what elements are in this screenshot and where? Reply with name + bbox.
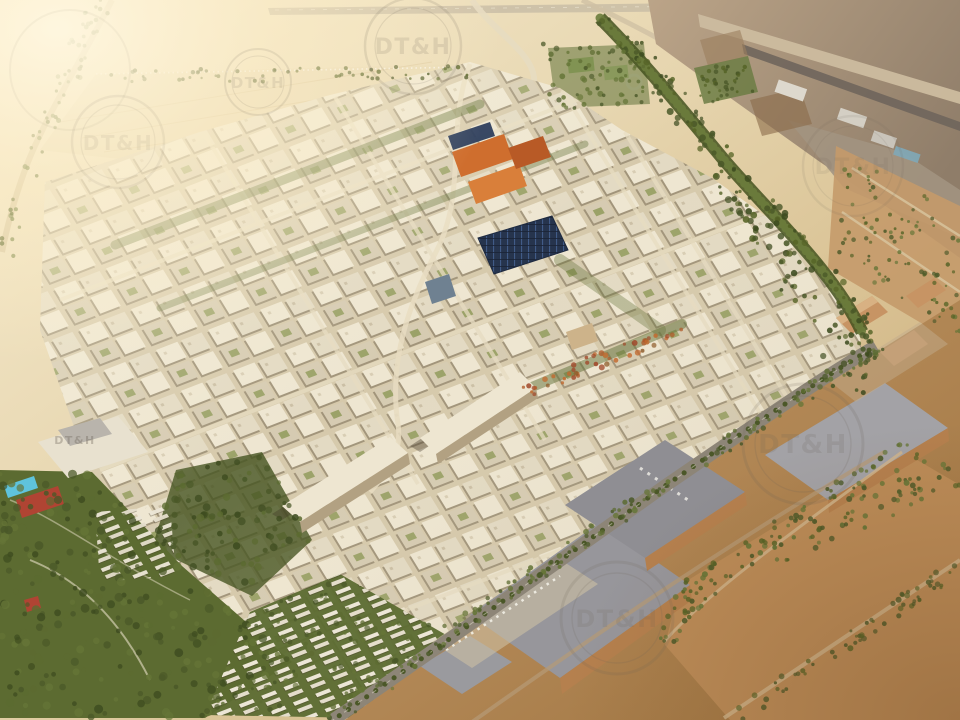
scene-canvas: DT&H DT&H DT&H DT&H DT&H DT&H DT&H xyxy=(0,0,960,720)
svg-text:DT&H: DT&H xyxy=(815,155,892,180)
watermark-text: DT&H xyxy=(54,434,95,447)
svg-text:DT&H: DT&H xyxy=(575,605,658,633)
corner-vignette xyxy=(0,0,960,720)
svg-text:DT&H: DT&H xyxy=(231,74,285,92)
aerial-masterplan-render: DT&H DT&H DT&H DT&H DT&H DT&H DT&H xyxy=(0,0,960,720)
lighting-overlays xyxy=(0,0,960,720)
svg-text:DT&H: DT&H xyxy=(83,131,153,155)
svg-text:DT&H: DT&H xyxy=(758,430,848,460)
svg-text:DT&H: DT&H xyxy=(375,35,452,60)
